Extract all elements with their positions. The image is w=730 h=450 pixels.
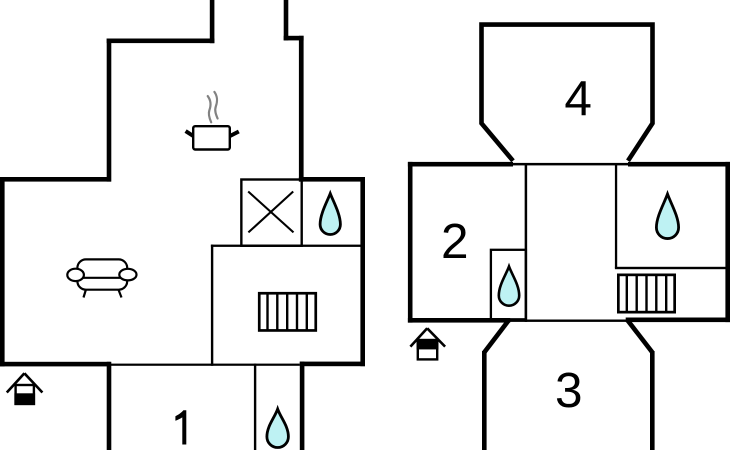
svg-text:2: 2 [441,214,469,269]
svg-text:3: 3 [555,363,583,418]
svg-text:4: 4 [564,71,592,126]
